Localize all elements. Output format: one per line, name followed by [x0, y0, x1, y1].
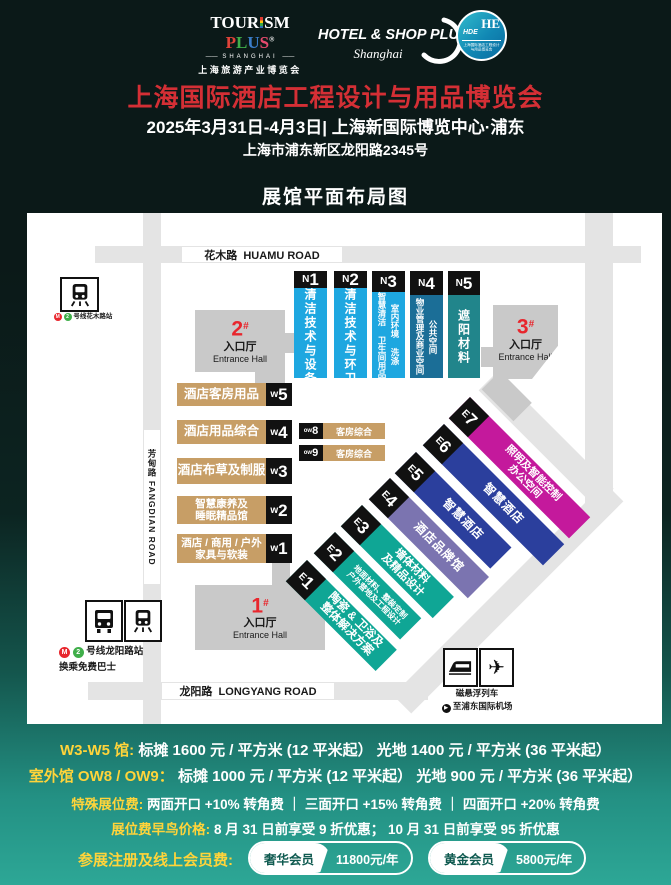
hall-w1-label: W1 [266, 534, 292, 563]
luxury-member-name: 奢华会员 [250, 843, 330, 873]
maglev-box [443, 648, 478, 687]
line-2-badge: 2 [73, 647, 84, 658]
hall-w4-label: W4 [266, 420, 292, 444]
longyang-train-box [124, 600, 162, 642]
gold-member-price: 5800元/年 [510, 849, 584, 868]
hall-n4: N4 物业管理及商业空间公共空间 [410, 271, 443, 378]
entrance-1-num: 1 [251, 594, 263, 617]
train-icon [132, 608, 154, 634]
hall-w3-label: W3 [266, 458, 292, 484]
hall-w5-label: W5 [266, 383, 292, 406]
registered-mark: ® [269, 35, 274, 43]
hall-n4-label: N4 [410, 271, 443, 295]
entrance-2-number: 2# [231, 317, 248, 340]
tourism-cn-name: 上海旅游产业博览会 [186, 63, 314, 76]
hall-n2-label: N2 [334, 271, 367, 288]
longyang-station-name: 号线龙阳路站 [86, 646, 143, 657]
hde-sub-wordmark: HDE [463, 29, 478, 36]
hall-ow8: OW8 客房综合 [299, 423, 385, 439]
free-shuttle-note: 换乘免费巴士 [59, 659, 116, 673]
pricing-line-earlybird: 展位费早鸟价格: 8 月 31 日前享受 9 折优惠； 10 月 31 日前享受… [0, 818, 671, 838]
metro-logo-icon: M [54, 313, 62, 321]
entrance-1-label-en: Entrance Hall [233, 630, 287, 641]
tourism-word-b: SM [264, 13, 290, 32]
entrance-hall-2: 2# 入口厅 Entrance Hall [195, 310, 285, 372]
hall-w2-label: W2 [266, 496, 292, 524]
poster-page: TOURSM PLUS® —— SHANGHAI —— 上海旅游产业博览会 HO… [0, 0, 671, 885]
hall-n3-label: N3 [372, 271, 405, 292]
longyang-road-label: 龙阳路 LONGYANG ROAD [162, 683, 334, 699]
huamu-station-label: M 2 号线花木路站 [35, 310, 131, 321]
gold-member-pill[interactable]: 黄金会员 5800元/年 [428, 841, 586, 875]
pricing-line-w-halls: W3-W5 馆: 标摊 1600 元 / 平方米 (12 平米起） 光地 140… [0, 739, 671, 760]
map-heading: 展馆平面布局图 [0, 182, 671, 209]
hde-monogram: HE [481, 16, 500, 32]
hall-n4-text-left: 物业管理及商业空间 [414, 298, 426, 375]
huamu-metro-station-box [60, 277, 99, 312]
hall-n3: N3 智慧清洁 卫生间用品室内环境 洗涤 [372, 271, 405, 378]
entrance-2-hash: # [243, 321, 249, 332]
huamu-road [95, 246, 641, 263]
train-icon [69, 283, 91, 307]
tourism-plus-logo: TOURSM PLUS® —— SHANGHAI —— 上海旅游产业博览会 [186, 13, 314, 76]
entrance-1-number: 1# [251, 594, 268, 617]
hall-n1-label: N1 [294, 271, 327, 288]
page-title: 上海国际酒店工程设计与用品博览会 [0, 78, 671, 114]
entrance-2-num: 2 [231, 318, 243, 341]
tourism-plus-l: L [236, 33, 247, 52]
fangdian-road-label: 芳甸路 FANGDIAN ROAD [144, 430, 160, 584]
pricing-line-special: 特殊展位费: 两面开口 +10% 转角费 ｜ 三面开口 +15% 转角费 ｜ 四… [0, 793, 671, 813]
tourism-word-a: TOUR [210, 13, 259, 32]
pricing-line4-text: 8 月 31 日前享受 9 折优惠； 10 月 31 日前享受 95 折优惠 [214, 822, 560, 837]
hall-w4: 酒店用品综合 W4 [177, 420, 292, 444]
maglev-train-icon [448, 659, 473, 677]
hall-w5: 酒店客房用品 W5 [177, 383, 292, 406]
hall-ow8-label: OW8 [299, 423, 323, 439]
hde-divider [462, 40, 501, 41]
tourism-plus-u: U [247, 33, 259, 52]
hall-n5-text: 遮阳材料 [456, 309, 473, 365]
pricing-line-ow-halls: 室外馆 OW8 / OW9： 标摊 1000 元 / 平方米 (12 平米起） … [0, 765, 671, 786]
tourism-shanghai-line: —— SHANGHAI —— [186, 54, 314, 60]
entrance-1-label: 入口厅 [244, 617, 277, 630]
hall-n5-label: N5 [448, 271, 480, 295]
airport-label: 至浦东国际机场 [453, 701, 513, 711]
luxury-member-price: 11800元/年 [330, 849, 411, 868]
hall-n2-text: 清洁技术与环卫 [342, 288, 359, 386]
entrance-hall-3: 3# 入口厅 Entrance Hall [493, 305, 558, 379]
metro-logo-icon: M [59, 647, 70, 658]
hall-ow9: OW9 客房综合 [299, 445, 385, 461]
hall-n2: N2 清洁技术与环卫 [334, 271, 367, 378]
airplane-icon: ✈ [488, 655, 505, 680]
longyang-bus-box [85, 600, 123, 642]
pricing-line2-label: 室外馆 OW8 / OW9： [29, 768, 174, 785]
bus-icon [92, 608, 116, 634]
hde-tiny-line2: 与用品博览会 [460, 47, 502, 52]
event-address: 上海市浦东新区龙阳路2345号 [0, 140, 671, 160]
hall-n1-text: 清洁技术与设备 [302, 288, 319, 386]
membership-label: 参展注册及线上会员费: [78, 849, 233, 870]
entrance-3-number: 3# [517, 315, 534, 338]
hall-n4-text-right: 公共空间 [427, 320, 439, 354]
airport-box: ✈ [479, 648, 514, 687]
pricing-line1-label: W3-W5 馆: [60, 742, 134, 759]
tourism-shanghai-text: SHANGHAI [222, 54, 277, 60]
entrance-3-hash: # [529, 319, 535, 330]
hall-ow8-text: 客房综合 [323, 423, 385, 439]
hall-n3-text-right: 室内环境 洗涤 [389, 304, 401, 365]
entrance-2-arm [285, 333, 294, 353]
line-2-badge: 2 [64, 313, 72, 321]
hall-w1-text: 酒店 / 商用 / 户外 家具与软装 [177, 537, 266, 561]
pricing-line4-label: 展位费早鸟价格: [111, 822, 210, 837]
pricing-line3-text: 两面开口 +10% 转角费 ｜ 三面开口 +15% 转角费 ｜ 四面开口 +20… [147, 797, 600, 812]
hall-w4-text: 酒店用品综合 [177, 425, 266, 439]
entrance-1-hash: # [263, 598, 269, 609]
hall-n5: N5 遮阳材料 [448, 271, 480, 378]
entrance-2-label-en: Entrance Hall [213, 354, 267, 365]
tourism-i-strip-icon [260, 17, 263, 28]
airport-direction-icon: ▶ [442, 704, 451, 713]
hall-w3-text: 酒店布草及制服 [177, 464, 266, 478]
tourism-plus-s: S [260, 33, 269, 52]
entrance-3-arm [481, 347, 493, 367]
gold-member-name: 黄金会员 [430, 843, 510, 873]
hall-ow9-label: OW9 [299, 445, 323, 461]
hall-w2-text: 智慧康养及 睡眠精品馆 [177, 498, 266, 522]
entrance-3-label: 入口厅 [509, 339, 542, 352]
floor-plan-map: 花木路 HUAMU ROAD 芳甸路 FANGDIAN ROAD 龙阳路 LON… [27, 213, 662, 724]
airport-label-row: ▶ 至浦东国际机场 [427, 700, 527, 713]
event-date-venue: 2025年3月31日-4月3日| 上海新国际博览中心·浦东 [0, 113, 671, 138]
luxury-member-pill[interactable]: 奢华会员 11800元/年 [248, 841, 413, 875]
hall-w2: 智慧康养及 睡眠精品馆 W2 [177, 496, 292, 524]
huamu-station-name: 号线花木路站 [73, 313, 112, 320]
hall-w1-line1: 酒店 / 商用 / 户外 [177, 537, 266, 549]
right-vertical-road [585, 213, 613, 503]
tourism-plus-p: P [226, 33, 236, 52]
hall-w1-line2: 家具与软装 [177, 549, 266, 561]
hall-n1: N1 清洁技术与设备 [294, 271, 327, 378]
hall-w3: 酒店布草及制服 W3 [177, 458, 292, 484]
pricing-line3-label: 特殊展位费: [71, 797, 143, 812]
entrance-3-label-en: Entrance Hall [498, 352, 552, 363]
pricing-line1-text: 标摊 1600 元 / 平方米 (12 平米起） 光地 1400 元 / 平方米… [138, 742, 611, 759]
hde-tiny-text: 上海国际酒店工程设计 与用品博览会 [460, 43, 502, 52]
maglev-label: 磁悬浮列车 [427, 687, 527, 699]
hde-badge-logo: HE HDE 上海国际酒店工程设计 与用品博览会 [456, 10, 507, 61]
hall-n3-text-left: 智慧清洁 卫生间用品 [376, 292, 388, 379]
tourism-wordmark: TOURSM PLUS® [186, 13, 314, 53]
pricing-line2-text: 标摊 1000 元 / 平方米 (12 平米起） 光地 900 元 / 平方米 … [178, 768, 642, 785]
longyang-station-label: M 2 号线龙阳路站 [59, 643, 143, 658]
huamu-road-label: 花木路 HUAMU ROAD [182, 247, 342, 262]
entrance-2-label: 入口厅 [224, 341, 257, 354]
hall-w2-line2: 睡眠精品馆 [177, 510, 266, 522]
hall-w1: 酒店 / 商用 / 户外 家具与软装 W1 [177, 534, 292, 563]
hall-w2-line1: 智慧康养及 [177, 498, 266, 510]
hall-w5-text: 酒店客房用品 [177, 388, 266, 402]
entrance-3-num: 3 [517, 316, 529, 339]
hall-ow9-text: 客房综合 [323, 445, 385, 461]
